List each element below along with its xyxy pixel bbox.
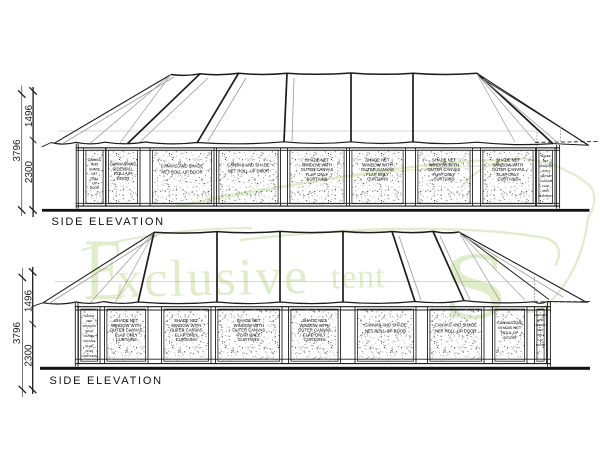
svg-text:AND: AND bbox=[537, 318, 544, 322]
svg-text:CURTAINS: CURTAINS bbox=[497, 177, 518, 182]
svg-text:NET ROLL-UP DOOR: NET ROLL-UP DOOR bbox=[228, 169, 269, 174]
svg-text:CURTAINS: CURTAINS bbox=[304, 337, 325, 342]
svg-text:DOOR: DOOR bbox=[117, 176, 130, 181]
svg-text:SHADE: SHADE bbox=[535, 323, 545, 327]
svg-text:2300: 2300 bbox=[24, 344, 35, 367]
svg-text:NET: NET bbox=[91, 172, 97, 176]
svg-text:tent: tent bbox=[330, 258, 386, 296]
svg-text:3796: 3796 bbox=[12, 139, 23, 162]
svg-text:UP: UP bbox=[92, 182, 96, 186]
svg-text:SIDE ELEVATION: SIDE ELEVATION bbox=[50, 375, 163, 387]
svg-text:CURTAINS: CURTAINS bbox=[538, 194, 553, 198]
svg-text:DOOR: DOOR bbox=[90, 186, 100, 190]
svg-text:CURTAINS: CURTAINS bbox=[238, 337, 259, 342]
svg-text:CANVAS AND SHADE: CANVAS AND SHADE bbox=[161, 164, 203, 169]
svg-text:3796: 3796 bbox=[12, 321, 23, 344]
svg-text:CANVAS: CANVAS bbox=[540, 179, 552, 183]
svg-text:ONLY: ONLY bbox=[85, 349, 93, 353]
svg-text:NET: NET bbox=[86, 319, 92, 323]
svg-text:OUTER: OUTER bbox=[84, 334, 95, 338]
svg-text:ROLL: ROLL bbox=[90, 177, 99, 181]
svg-text:CANVAS AND SHADE: CANVAS AND SHADE bbox=[435, 323, 477, 328]
svg-text:NET ROLL-UP DOOR: NET ROLL-UP DOOR bbox=[435, 329, 476, 334]
svg-text:FLAP: FLAP bbox=[542, 184, 550, 188]
svg-text:WITH: WITH bbox=[85, 329, 93, 333]
svg-text:CURTAINS: CURTAINS bbox=[116, 337, 137, 342]
svg-text:FLAP: FLAP bbox=[85, 344, 93, 348]
svg-text:DOOR: DOOR bbox=[504, 335, 516, 340]
svg-text:CANVAS: CANVAS bbox=[88, 158, 101, 162]
svg-text:OUTER: OUTER bbox=[541, 174, 552, 178]
svg-text:CURTAINS: CURTAINS bbox=[176, 337, 197, 342]
svg-text:CANVAS: CANVAS bbox=[83, 339, 95, 343]
svg-text:AND: AND bbox=[91, 163, 98, 167]
svg-text:WINDOW: WINDOW bbox=[83, 324, 96, 328]
svg-text:ONLY: ONLY bbox=[542, 189, 550, 193]
svg-text:NET: NET bbox=[543, 159, 549, 163]
svg-text:DOOR: DOOR bbox=[536, 343, 546, 347]
svg-text:1496: 1496 bbox=[24, 104, 35, 127]
svg-text:NET: NET bbox=[538, 328, 544, 332]
svg-text:SHADE: SHADE bbox=[89, 167, 100, 171]
svg-text:NET ROLL-UP DOOR: NET ROLL-UP DOOR bbox=[365, 329, 406, 334]
svg-text:1496: 1496 bbox=[24, 289, 35, 312]
svg-text:UP: UP bbox=[538, 338, 542, 342]
svg-text:CURTAINS: CURTAINS bbox=[82, 354, 97, 358]
svg-text:SHADE: SHADE bbox=[84, 314, 94, 318]
svg-text:SHADE: SHADE bbox=[541, 154, 551, 158]
svg-text:CANVAS AND SHADE: CANVAS AND SHADE bbox=[364, 323, 406, 328]
svg-text:CANVAS: CANVAS bbox=[534, 313, 546, 317]
svg-text:CURTAINS: CURTAINS bbox=[433, 177, 454, 182]
svg-text:CURTAINS: CURTAINS bbox=[367, 177, 388, 182]
svg-text:ROLL: ROLL bbox=[537, 333, 545, 337]
svg-text:WINDOW: WINDOW bbox=[539, 164, 552, 168]
svg-text:WITH: WITH bbox=[542, 169, 550, 173]
svg-text:CANVAS AND SHADE: CANVAS AND SHADE bbox=[227, 163, 269, 168]
svg-text:CURTAINS: CURTAINS bbox=[306, 177, 327, 182]
svg-text:SIDE ELEVATION: SIDE ELEVATION bbox=[52, 216, 165, 228]
svg-text:2300: 2300 bbox=[24, 160, 35, 183]
svg-text:NET ROLL-UP DOOR: NET ROLL-UP DOOR bbox=[161, 170, 202, 175]
